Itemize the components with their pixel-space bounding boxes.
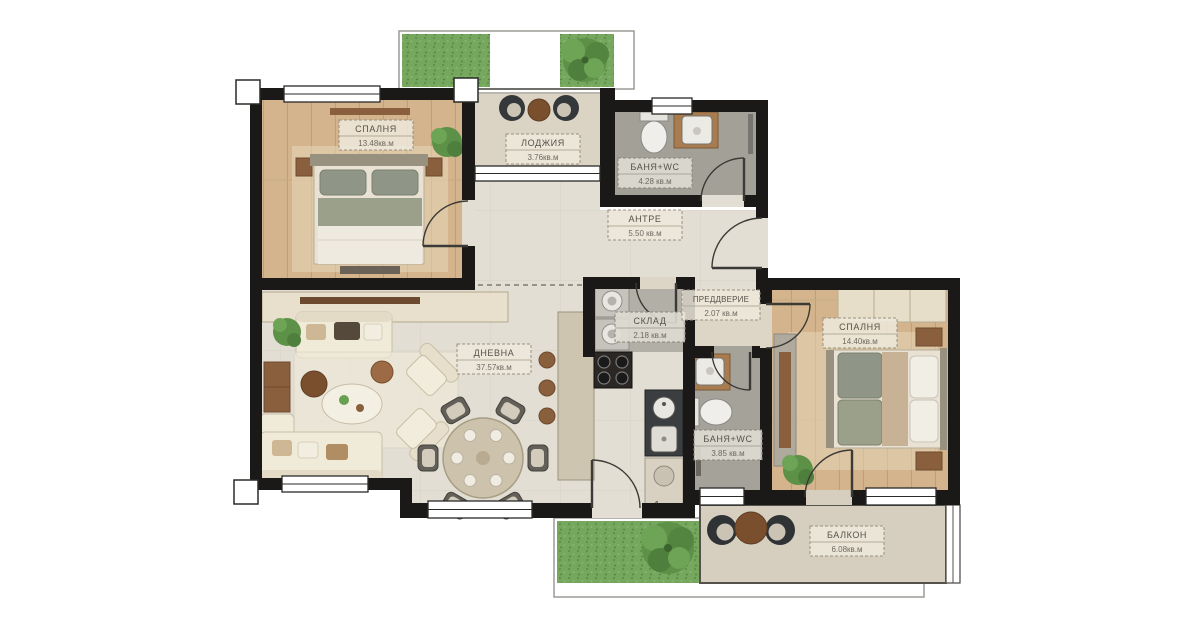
dining-chair (418, 445, 438, 471)
plate (464, 475, 476, 487)
plate (490, 430, 502, 442)
threshold (702, 195, 744, 207)
dining-chair (528, 445, 548, 471)
pillar (236, 80, 260, 104)
burner (598, 372, 610, 384)
room-area: 13.48кв.м (358, 139, 394, 148)
plant-leaves (431, 128, 447, 144)
burner (616, 356, 628, 368)
sofa-pillow (298, 442, 318, 458)
wall (752, 346, 760, 358)
label-loggia: ЛОДЖИЯ 3.76кв.м (506, 134, 580, 164)
pillar (234, 480, 258, 504)
sink-drain (706, 367, 714, 375)
table-decor (356, 404, 364, 412)
label-balcony: БАЛКОН 6.08кв.м (810, 526, 884, 556)
cooktop (594, 352, 632, 388)
window (475, 166, 600, 181)
centerpiece (476, 451, 490, 465)
chair-seat (531, 449, 544, 467)
sofa-pillow (364, 324, 382, 340)
room-area: 6.08кв.м (831, 545, 862, 554)
toilet-bowl (700, 399, 732, 425)
wall (695, 490, 700, 505)
balcony-chair-seat (769, 524, 786, 541)
chair-seat (422, 449, 435, 467)
side-table (301, 371, 327, 397)
bed-pillow (910, 356, 938, 398)
wall (760, 278, 960, 290)
room-name: БАНЯ+WC (630, 162, 679, 172)
loggia-table (528, 99, 550, 121)
room-area: 2.07 кв.м (704, 309, 737, 318)
tv (300, 297, 420, 304)
wall (250, 278, 475, 290)
threshold (462, 200, 475, 246)
plant-leaves (287, 333, 301, 347)
label-bathroom-2: БАНЯ+WC 3.85 кв.м (694, 430, 762, 460)
bed-footboard (826, 350, 834, 448)
bed-double (310, 154, 428, 264)
bar-stool (539, 408, 555, 424)
plate (464, 430, 476, 442)
sink-drain (693, 127, 701, 135)
nightstand (916, 452, 942, 470)
wall (948, 278, 960, 505)
plant-leaves (447, 141, 463, 157)
threshold (806, 490, 852, 505)
threshold (760, 304, 772, 348)
room-name: ЛОДЖИЯ (521, 138, 565, 148)
sink-drain (662, 437, 667, 442)
balcony-furniture (707, 512, 795, 545)
bed-pillow (372, 170, 418, 195)
sofa-pillow (326, 444, 348, 460)
room-area: 4.28 кв.м (638, 177, 671, 186)
bed-bench (340, 266, 400, 274)
balcony-table (735, 512, 767, 544)
floor-plan-canvas: 1 (0, 0, 1200, 630)
wall (695, 346, 714, 358)
window (652, 98, 692, 114)
nightstand (426, 158, 442, 176)
wall (760, 290, 772, 304)
nightstand (296, 158, 312, 176)
table-plant (339, 395, 349, 405)
window (866, 488, 936, 505)
window (700, 488, 744, 505)
burner (616, 372, 628, 384)
wall (532, 503, 592, 518)
threshold (592, 503, 642, 518)
label-living-room: ДНЕВНА 37.57кв.м (457, 344, 531, 374)
sofa-pillow (306, 324, 326, 340)
room-name: СКЛАД (633, 316, 666, 326)
wall (400, 503, 428, 518)
loggia-furniture (499, 95, 579, 121)
room-name: ДНЕВНА (474, 348, 515, 358)
sofa-tray-table (334, 322, 360, 340)
label-entry-hall: АНТРЕ 5.50 кв.м (608, 210, 682, 240)
room-area: 3.76кв.м (527, 153, 558, 162)
round-sink (653, 397, 675, 419)
loggia-chair-seat (557, 103, 571, 117)
plant-leaves (273, 318, 287, 332)
threshold (756, 218, 768, 268)
wall (583, 277, 640, 289)
room-name: ПРЕДДВЕРИЕ (693, 295, 749, 304)
wall (642, 503, 683, 518)
room-name: БАНЯ+WC (703, 434, 752, 444)
label-bathroom-1: БАНЯ+WC 4.28 кв.м (618, 158, 692, 188)
sofa-pillow (272, 440, 292, 456)
wall (462, 88, 475, 200)
label-storage: СКЛАД 2.18 кв.м (615, 312, 685, 342)
plate (490, 475, 502, 487)
plate (503, 452, 515, 464)
label-bedroom-1: СПАЛНЯ 13.48кв.м (339, 120, 413, 150)
bed-duvet (838, 353, 882, 398)
room-area: 14.40кв.м (842, 337, 878, 346)
wall-shelf (330, 108, 410, 115)
window (284, 86, 380, 102)
sofa-top (296, 312, 392, 358)
wall (852, 490, 866, 505)
bed-throw (882, 352, 908, 446)
room-name: СПАЛНЯ (355, 124, 397, 134)
plant-leaves (782, 455, 798, 471)
room-area: 37.57кв.м (476, 363, 512, 372)
bed-pillow (910, 400, 938, 442)
bar-stool (539, 352, 555, 368)
pillar (454, 78, 478, 102)
bed-pillow (320, 170, 366, 195)
kitchen-sink-unit (645, 390, 683, 456)
wall (612, 195, 702, 207)
floor-plan-page: 1 (0, 0, 1200, 630)
wall (936, 490, 960, 505)
room-area: 5.50 кв.м (628, 229, 661, 238)
nightstand (916, 328, 942, 346)
wardrobe (838, 286, 946, 322)
wall (744, 195, 768, 207)
bed-duvet (838, 400, 882, 445)
bed-headboard (310, 154, 428, 166)
coffee-table (322, 384, 382, 424)
sofa-back (296, 312, 392, 322)
towel-radiator (748, 114, 753, 154)
label-bedroom-2: СПАЛНЯ 14.40кв.м (823, 318, 897, 348)
room-name: СПАЛНЯ (839, 322, 881, 332)
room-area: 2.18 кв.м (633, 331, 666, 340)
wall (744, 490, 806, 505)
bed-blanket (318, 226, 422, 264)
loggia-chair-seat (507, 103, 521, 117)
bed-headboard (940, 348, 947, 450)
label-vestibule: ПРЕДДВЕРИЕ 2.07 кв.м (682, 290, 760, 320)
wall (760, 348, 772, 505)
faucet (662, 402, 666, 406)
dresser-front (779, 352, 791, 448)
washer-drum (608, 297, 617, 306)
plant-leaves (798, 469, 814, 485)
threshold (640, 277, 676, 289)
room-name: АНТРЕ (628, 214, 661, 224)
balcony-chair-seat (717, 524, 734, 541)
side-table (371, 361, 393, 383)
appliance-dial (654, 466, 674, 486)
toilet-bowl (641, 121, 667, 153)
window (282, 476, 368, 492)
bed-double (826, 348, 947, 450)
room-name: БАЛКОН (827, 530, 867, 540)
window (428, 501, 532, 518)
bar-stool (539, 380, 555, 396)
burner (598, 356, 610, 368)
bed-duvet (318, 198, 422, 226)
plate (451, 452, 463, 464)
room-area: 3.85 кв.м (711, 449, 744, 458)
